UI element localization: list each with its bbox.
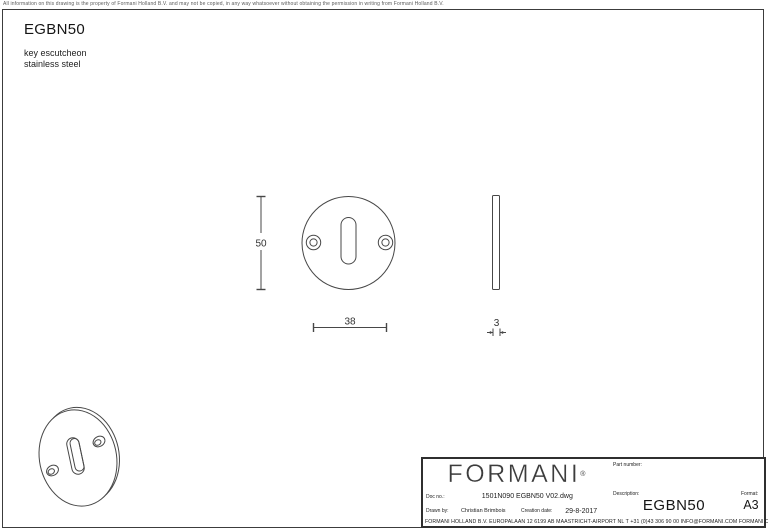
creation-date-value: 29-8-2017 [552,508,610,515]
creation-date-label: Creation date: [521,508,552,514]
doc-no-cell: Doc no.: 1501N090 EGBN50 V02.dwg [423,489,610,504]
side-view [493,196,500,290]
dimension-thickness-label: 3 [494,318,500,329]
dimension-thickness: 3 [487,318,506,336]
isometric-view [30,400,128,513]
screw-hole-left-outer [306,235,320,249]
drawn-by-label: Drawn by: [426,508,449,514]
dimension-diameter-label: 50 [255,239,267,250]
format-label: Format: [741,491,758,497]
side-profile [493,196,500,290]
dimension-diameter: 50 [251,197,271,290]
company-footer-cell: FORMANI HOLLAND B.V. EUROPALAAN 12 6199 … [423,518,764,526]
doc-no-label: Doc no.: [426,494,445,500]
dimension-hole-spacing-label: 38 [344,317,356,328]
logo-cell: FORMANI® [423,459,610,489]
drawn-by-value: Christian Brimbois [449,508,518,514]
format-value: A3 [738,498,764,512]
screw-hole-right-outer [378,235,392,249]
screw-hole-right-inner [382,239,389,246]
screw-hole-left-inner [310,239,317,246]
keyhole-slot [341,218,356,265]
doc-no-value: 1501N090 EGBN50 V02.dwg [445,493,610,500]
escutcheon-outline [302,197,395,290]
drawing-canvas: 50 38 3 [0,0,768,530]
format-cell: Format: A3 [738,488,764,518]
description-cell: Description: EGBN50 [610,488,738,518]
drawn-by-cell: Drawn by: Christian Brimbois [423,504,518,518]
part-number-cell: Part number: [610,459,764,488]
company-address: FORMANI HOLLAND B.V. EUROPALAAN 12 6199 … [425,519,768,525]
front-view [302,197,395,290]
creation-date-cell: Creation date: 29-8-2017 [518,504,610,518]
formani-logo: FORMANI [448,460,581,489]
dimension-hole-spacing: 38 [314,317,387,333]
drawing-sheet: All information on this drawing is the p… [0,0,768,530]
part-number-label: Part number: [613,462,642,468]
registered-trademark-icon: ® [580,471,585,478]
description-value: EGBN50 [610,497,738,514]
title-block: FORMANI® Doc no.: 1501N090 EGBN50 V02.dw… [421,457,766,528]
